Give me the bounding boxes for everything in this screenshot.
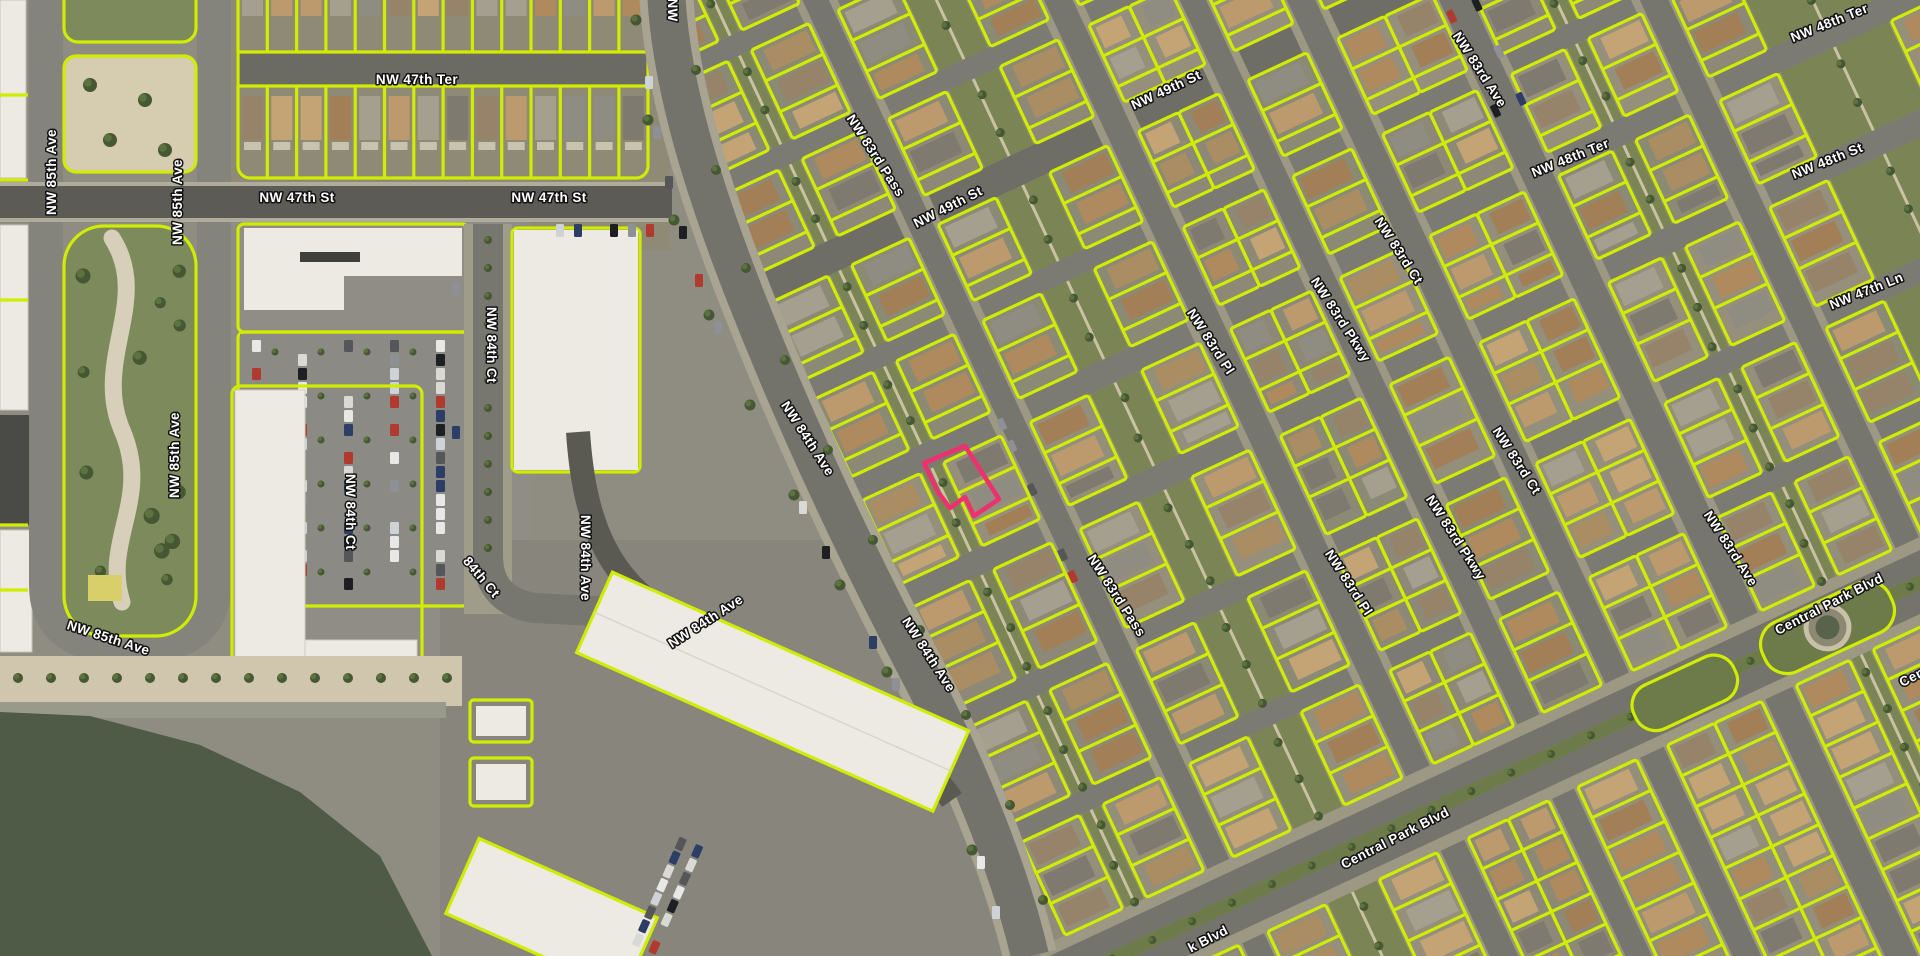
street-label: NW 84th Ct [343, 474, 358, 550]
aerial-map: NW 47th TerNW 47th StNW 47th StNW 49th S… [0, 0, 1920, 956]
street-label: NW 84th Ct [484, 307, 499, 383]
street-label: NW 47th Ter [376, 72, 459, 87]
street-label: NW 84th Ave [578, 515, 593, 601]
street-label: NW [665, 0, 680, 22]
street-label: NW 85th Ave [44, 129, 59, 215]
street-label: NW 85th Ave [170, 159, 185, 245]
street-label: NW 47th St [511, 190, 586, 205]
street-label: NW 85th Ave [167, 412, 182, 498]
street-label: NW 47th St [259, 190, 334, 205]
map-viewport[interactable]: NW 47th TerNW 47th StNW 47th StNW 49th S… [0, 0, 1920, 956]
